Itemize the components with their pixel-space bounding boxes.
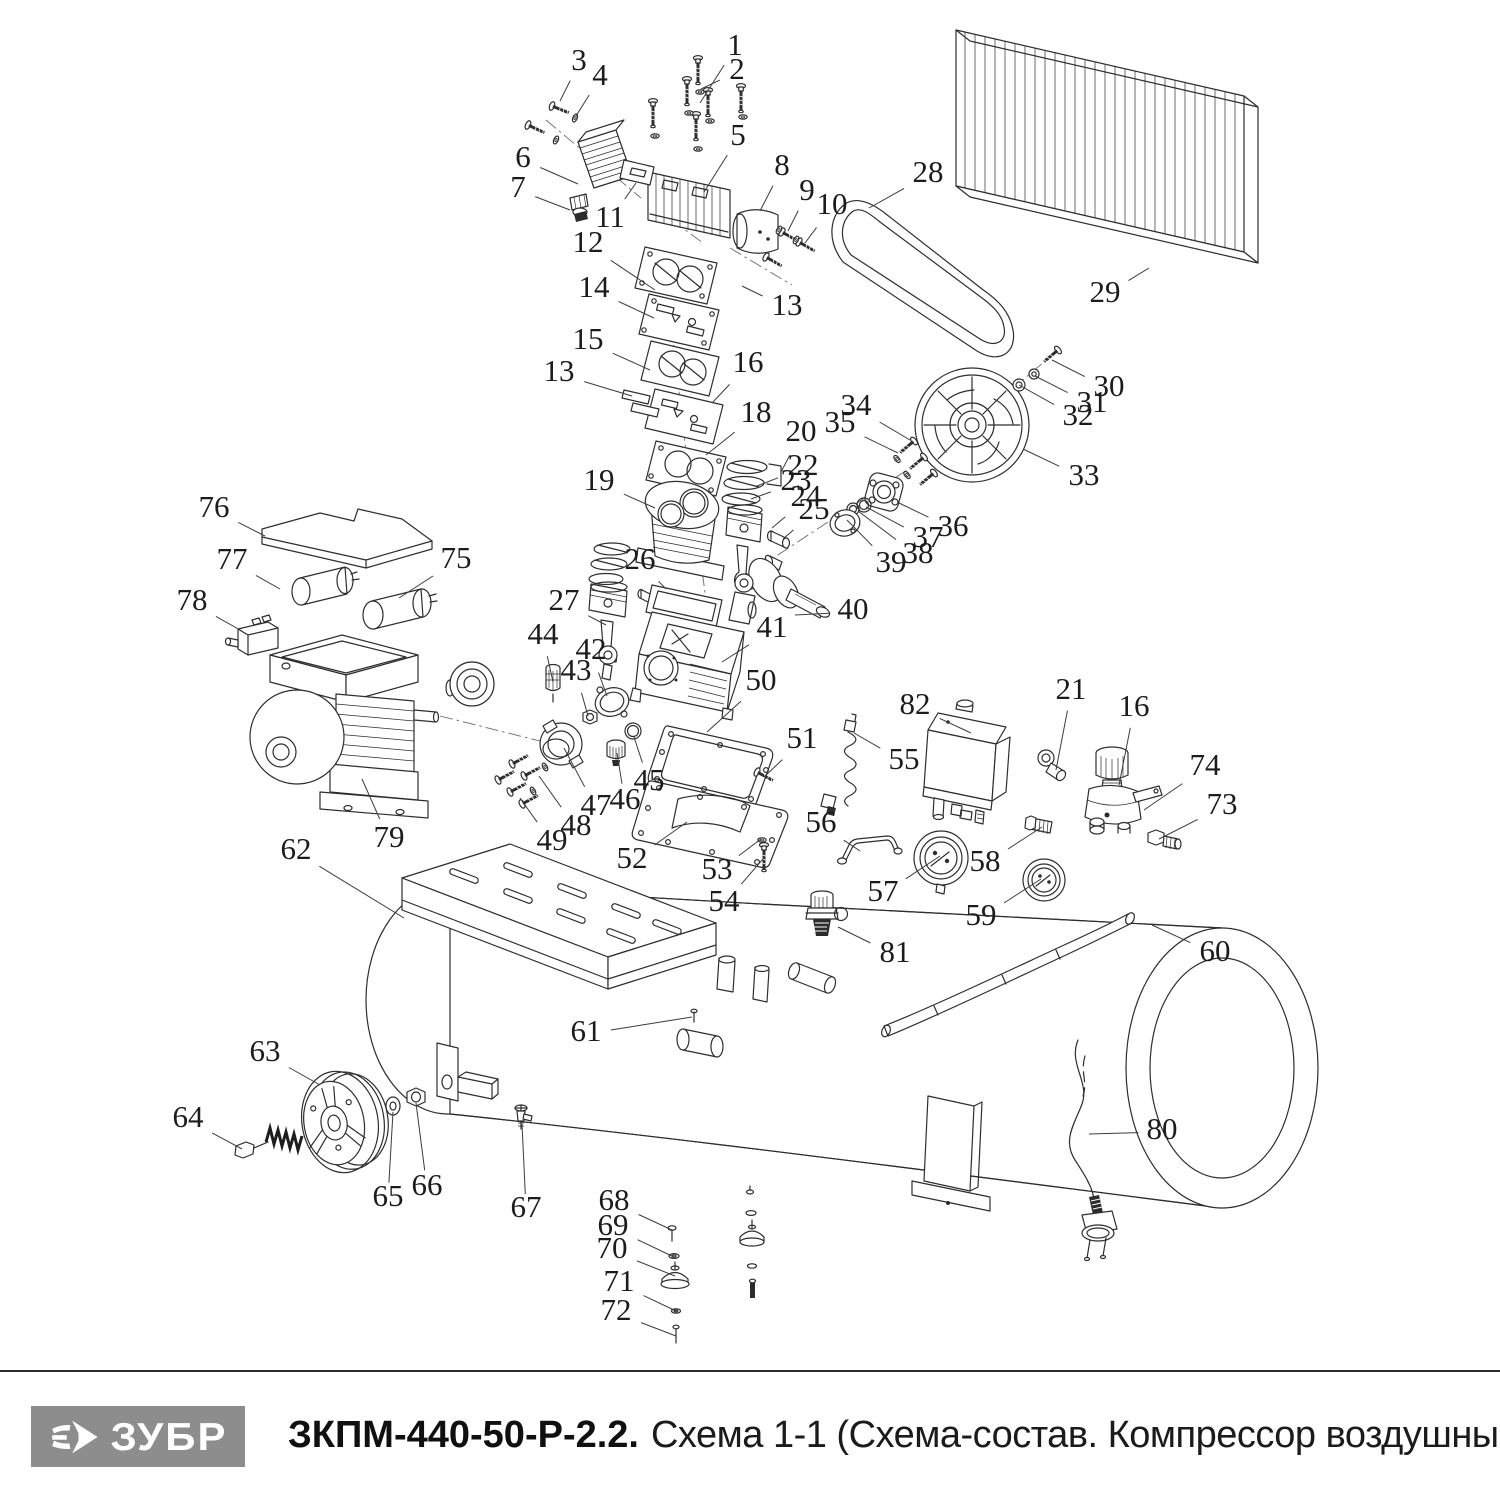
part-hose-pipe (821, 714, 902, 864)
part-label-44: 44 (528, 616, 560, 651)
part-label-53: 53 (702, 851, 733, 886)
leader-line-66 (416, 1103, 425, 1170)
part-label-74: 74 (1190, 747, 1222, 782)
scheme-subtitle: Схема 1-1 (Схема-состав. Компрессор возд… (651, 1414, 1500, 1457)
part-label-63: 63 (250, 1033, 281, 1068)
part-grille (956, 30, 1258, 263)
exploded-diagram: 1234567891011121314151613181920222324252… (0, 0, 1500, 1372)
part-label-60: 60 (1200, 933, 1231, 968)
leader-line-67 (522, 1124, 525, 1194)
part-label-28: 28 (913, 154, 944, 189)
part-label-51: 51 (787, 720, 818, 755)
leader-line-3 (560, 81, 570, 101)
part-label-77: 77 (217, 541, 248, 576)
part-label-46: 46 (610, 781, 641, 816)
part-gasket-stack (622, 247, 726, 496)
part-label-3: 3 (571, 42, 587, 77)
leader-line-13 (584, 382, 632, 396)
leader-line-76 (238, 522, 265, 536)
part-regulator (1025, 747, 1181, 849)
part-label-55: 55 (889, 741, 920, 776)
part-label-52: 52 (617, 840, 648, 875)
leader-line-7 (535, 197, 570, 210)
part-label-41: 41 (757, 609, 788, 644)
part-label-20: 20 (786, 413, 817, 448)
leader-line-13 (742, 286, 763, 296)
leader-line-9 (788, 211, 798, 231)
leader-line-45 (634, 737, 642, 763)
leader-line-35 (865, 437, 899, 453)
part-label-13: 13 (772, 287, 803, 322)
part-label-82: 82 (900, 686, 931, 721)
part-label-29: 29 (1090, 274, 1121, 309)
brand-text: ЗУБР (110, 1414, 227, 1458)
leader-line-38 (858, 511, 896, 540)
leader-line-24 (772, 517, 785, 528)
part-label-80: 80 (1147, 1111, 1178, 1146)
part-head-bolts (524, 56, 747, 152)
part-label-76: 76 (199, 489, 230, 524)
part-label-14: 14 (579, 269, 611, 304)
leader-line-71 (644, 1296, 676, 1311)
part-label-79: 79 (374, 819, 405, 854)
leader-line-21 (1056, 711, 1067, 770)
leader-line-28 (869, 188, 904, 208)
part-label-26: 26 (625, 541, 656, 576)
part-label-13: 13 (544, 353, 575, 388)
leader-line-68 (639, 1215, 672, 1231)
leader-line-10 (805, 228, 817, 243)
part-label-21: 21 (1056, 671, 1087, 706)
part-label-32: 32 (1063, 397, 1094, 432)
part-pressure-switch (923, 700, 1010, 824)
brand-arrow-icon (48, 1417, 100, 1457)
leader-line-29 (1128, 268, 1149, 281)
part-label-58: 58 (970, 843, 1001, 878)
leader-line-73 (1159, 819, 1198, 839)
part-label-15: 15 (573, 321, 604, 356)
leader-line-8 (760, 186, 773, 211)
brand-logo: ЗУБР (31, 1406, 245, 1467)
part-belt (832, 201, 1014, 357)
footer: ЗУБР ЗКПМ-440-50-Р-2.2. Схема 1-1 (Схема… (0, 1372, 1500, 1500)
part-label-81: 81 (880, 934, 911, 969)
leader-line-4 (576, 95, 589, 116)
part-label-62: 62 (281, 831, 312, 866)
part-label-73: 73 (1207, 786, 1238, 821)
leader-line-64 (212, 1133, 242, 1149)
doc-title: ЗКПМ-440-50-Р-2.2. Схема 1-1 (Схема-сост… (288, 1402, 1500, 1468)
part-label-27: 27 (549, 582, 580, 617)
leader-line-63 (289, 1068, 320, 1086)
part-label-39: 39 (876, 544, 907, 579)
part-label-18: 18 (741, 394, 772, 429)
part-label-43: 43 (561, 652, 592, 687)
part-feet (661, 1186, 764, 1343)
leader-line-16 (712, 384, 730, 403)
part-label-38: 38 (903, 535, 934, 570)
leader-line-25 (783, 530, 794, 539)
part-label-50: 50 (746, 662, 777, 697)
part-label-12: 12 (573, 224, 604, 259)
leader-line-48 (539, 776, 561, 807)
part-label-54: 54 (709, 883, 741, 918)
leader-line-33 (1023, 449, 1059, 466)
part-flywheel (915, 368, 1029, 482)
part-label-59: 59 (966, 897, 997, 932)
part-label-70: 70 (597, 1230, 628, 1265)
leader-line-31 (1035, 376, 1068, 393)
part-label-75: 75 (441, 540, 472, 575)
part-pulley-hardware (1013, 345, 1063, 391)
part-label-64: 64 (173, 1099, 205, 1134)
leader-line-72 (641, 1323, 676, 1336)
part-label-40: 40 (838, 591, 869, 626)
part-label-9: 9 (799, 172, 815, 207)
part-label-66: 66 (412, 1167, 443, 1202)
part-label-56: 56 (806, 804, 837, 839)
part-label-19: 19 (584, 462, 615, 497)
part-label-25: 25 (799, 491, 830, 526)
part-label-33: 33 (1069, 457, 1100, 492)
leader-line-65 (389, 1112, 393, 1183)
part-label-7: 7 (510, 169, 526, 204)
part-label-2: 2 (729, 51, 745, 86)
model-code: ЗКПМ-440-50-Р-2.2. (288, 1414, 639, 1457)
leader-line-62 (319, 866, 404, 918)
leader-line-77 (256, 575, 280, 589)
part-label-8: 8 (774, 147, 790, 182)
part-label-61: 61 (571, 1013, 602, 1048)
leader-line-23 (751, 492, 771, 499)
leader-line-70 (637, 1261, 675, 1276)
part-label-57: 57 (868, 873, 899, 908)
part-label-16: 16 (1119, 688, 1150, 723)
part-label-67: 67 (511, 1189, 542, 1224)
leader-line-11 (625, 183, 636, 199)
leader-line-78 (216, 616, 242, 631)
leader-line-30 (1052, 360, 1085, 377)
part-label-35: 35 (825, 404, 856, 439)
leader-line-15 (613, 353, 650, 370)
part-label-4: 4 (592, 57, 608, 92)
part-label-10: 10 (817, 186, 848, 221)
leader-line-55 (854, 733, 880, 748)
leader-line-69 (638, 1240, 674, 1257)
leader-line-6 (540, 168, 578, 185)
part-label-49: 49 (537, 822, 568, 857)
part-label-72: 72 (601, 1292, 632, 1327)
part-label-5: 5 (730, 117, 746, 152)
part-label-78: 78 (177, 582, 208, 617)
leader-line-36 (899, 503, 929, 517)
part-label-16: 16 (733, 344, 764, 379)
part-label-65: 65 (373, 1178, 404, 1213)
leader-line-58 (1008, 827, 1042, 849)
leader-line-34 (880, 422, 910, 440)
schematic-page: 1234567891011121314151613181920222324252… (0, 0, 1500, 1500)
